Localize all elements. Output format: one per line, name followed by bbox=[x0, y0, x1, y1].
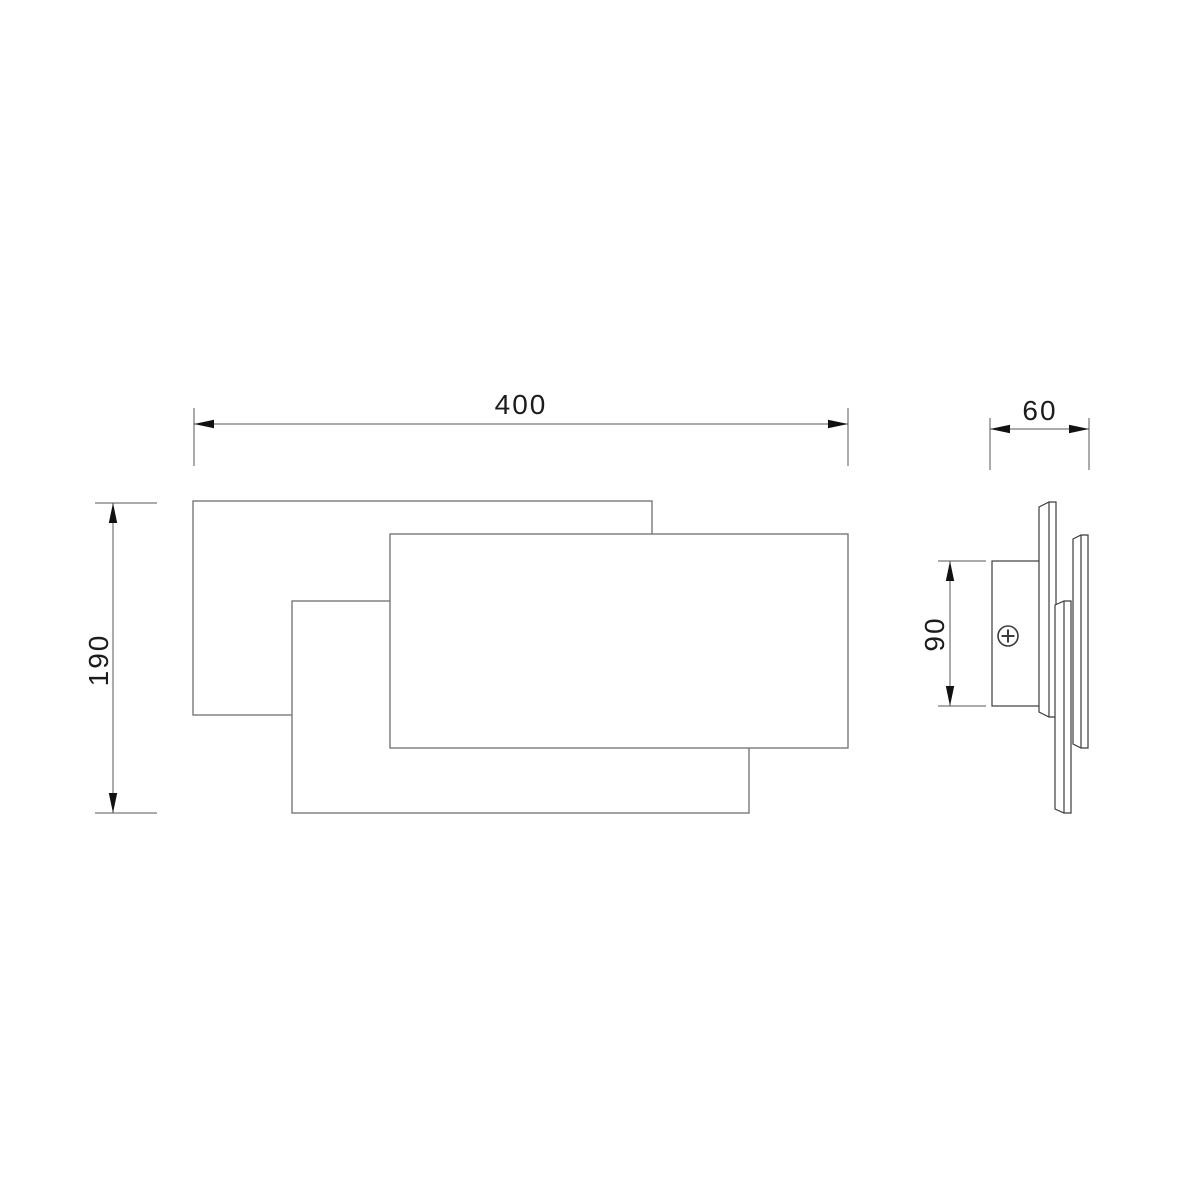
arrowhead-right bbox=[1069, 425, 1089, 433]
dimension-height: 190 bbox=[83, 503, 157, 813]
dimension-depth-label: 60 bbox=[1022, 395, 1057, 426]
dimension-width-label: 400 bbox=[495, 389, 548, 420]
arrowhead-left bbox=[194, 420, 214, 428]
middle-plate-outline bbox=[1055, 601, 1071, 813]
dimension-depth: 60 bbox=[990, 395, 1089, 470]
phillips-screw-icon bbox=[998, 626, 1018, 646]
dimension-width: 400 bbox=[194, 389, 848, 466]
back-plate-outline bbox=[1039, 502, 1056, 717]
front-plate-edge bbox=[1073, 535, 1088, 748]
middle-plate-edge bbox=[1055, 601, 1071, 813]
dimension-bracket-height: 90 bbox=[919, 561, 986, 706]
arrowhead-left bbox=[990, 425, 1010, 433]
dimension-height-label: 190 bbox=[83, 634, 114, 687]
front-panel-rect bbox=[390, 534, 848, 748]
arrowhead-bottom bbox=[109, 793, 117, 813]
side-view bbox=[992, 502, 1088, 813]
arrowhead-top bbox=[946, 561, 954, 581]
arrowhead-bottom bbox=[946, 686, 954, 706]
front-view bbox=[193, 501, 848, 813]
drawing-canvas: 400 190 60 90 bbox=[0, 0, 1200, 1200]
dimension-bracket-height-label: 90 bbox=[919, 616, 950, 651]
arrowhead-top bbox=[109, 503, 117, 523]
back-plate-edge bbox=[1039, 502, 1056, 717]
arrowhead-right bbox=[828, 420, 848, 428]
dimension-drawing: 400 190 60 90 bbox=[0, 0, 1200, 1200]
